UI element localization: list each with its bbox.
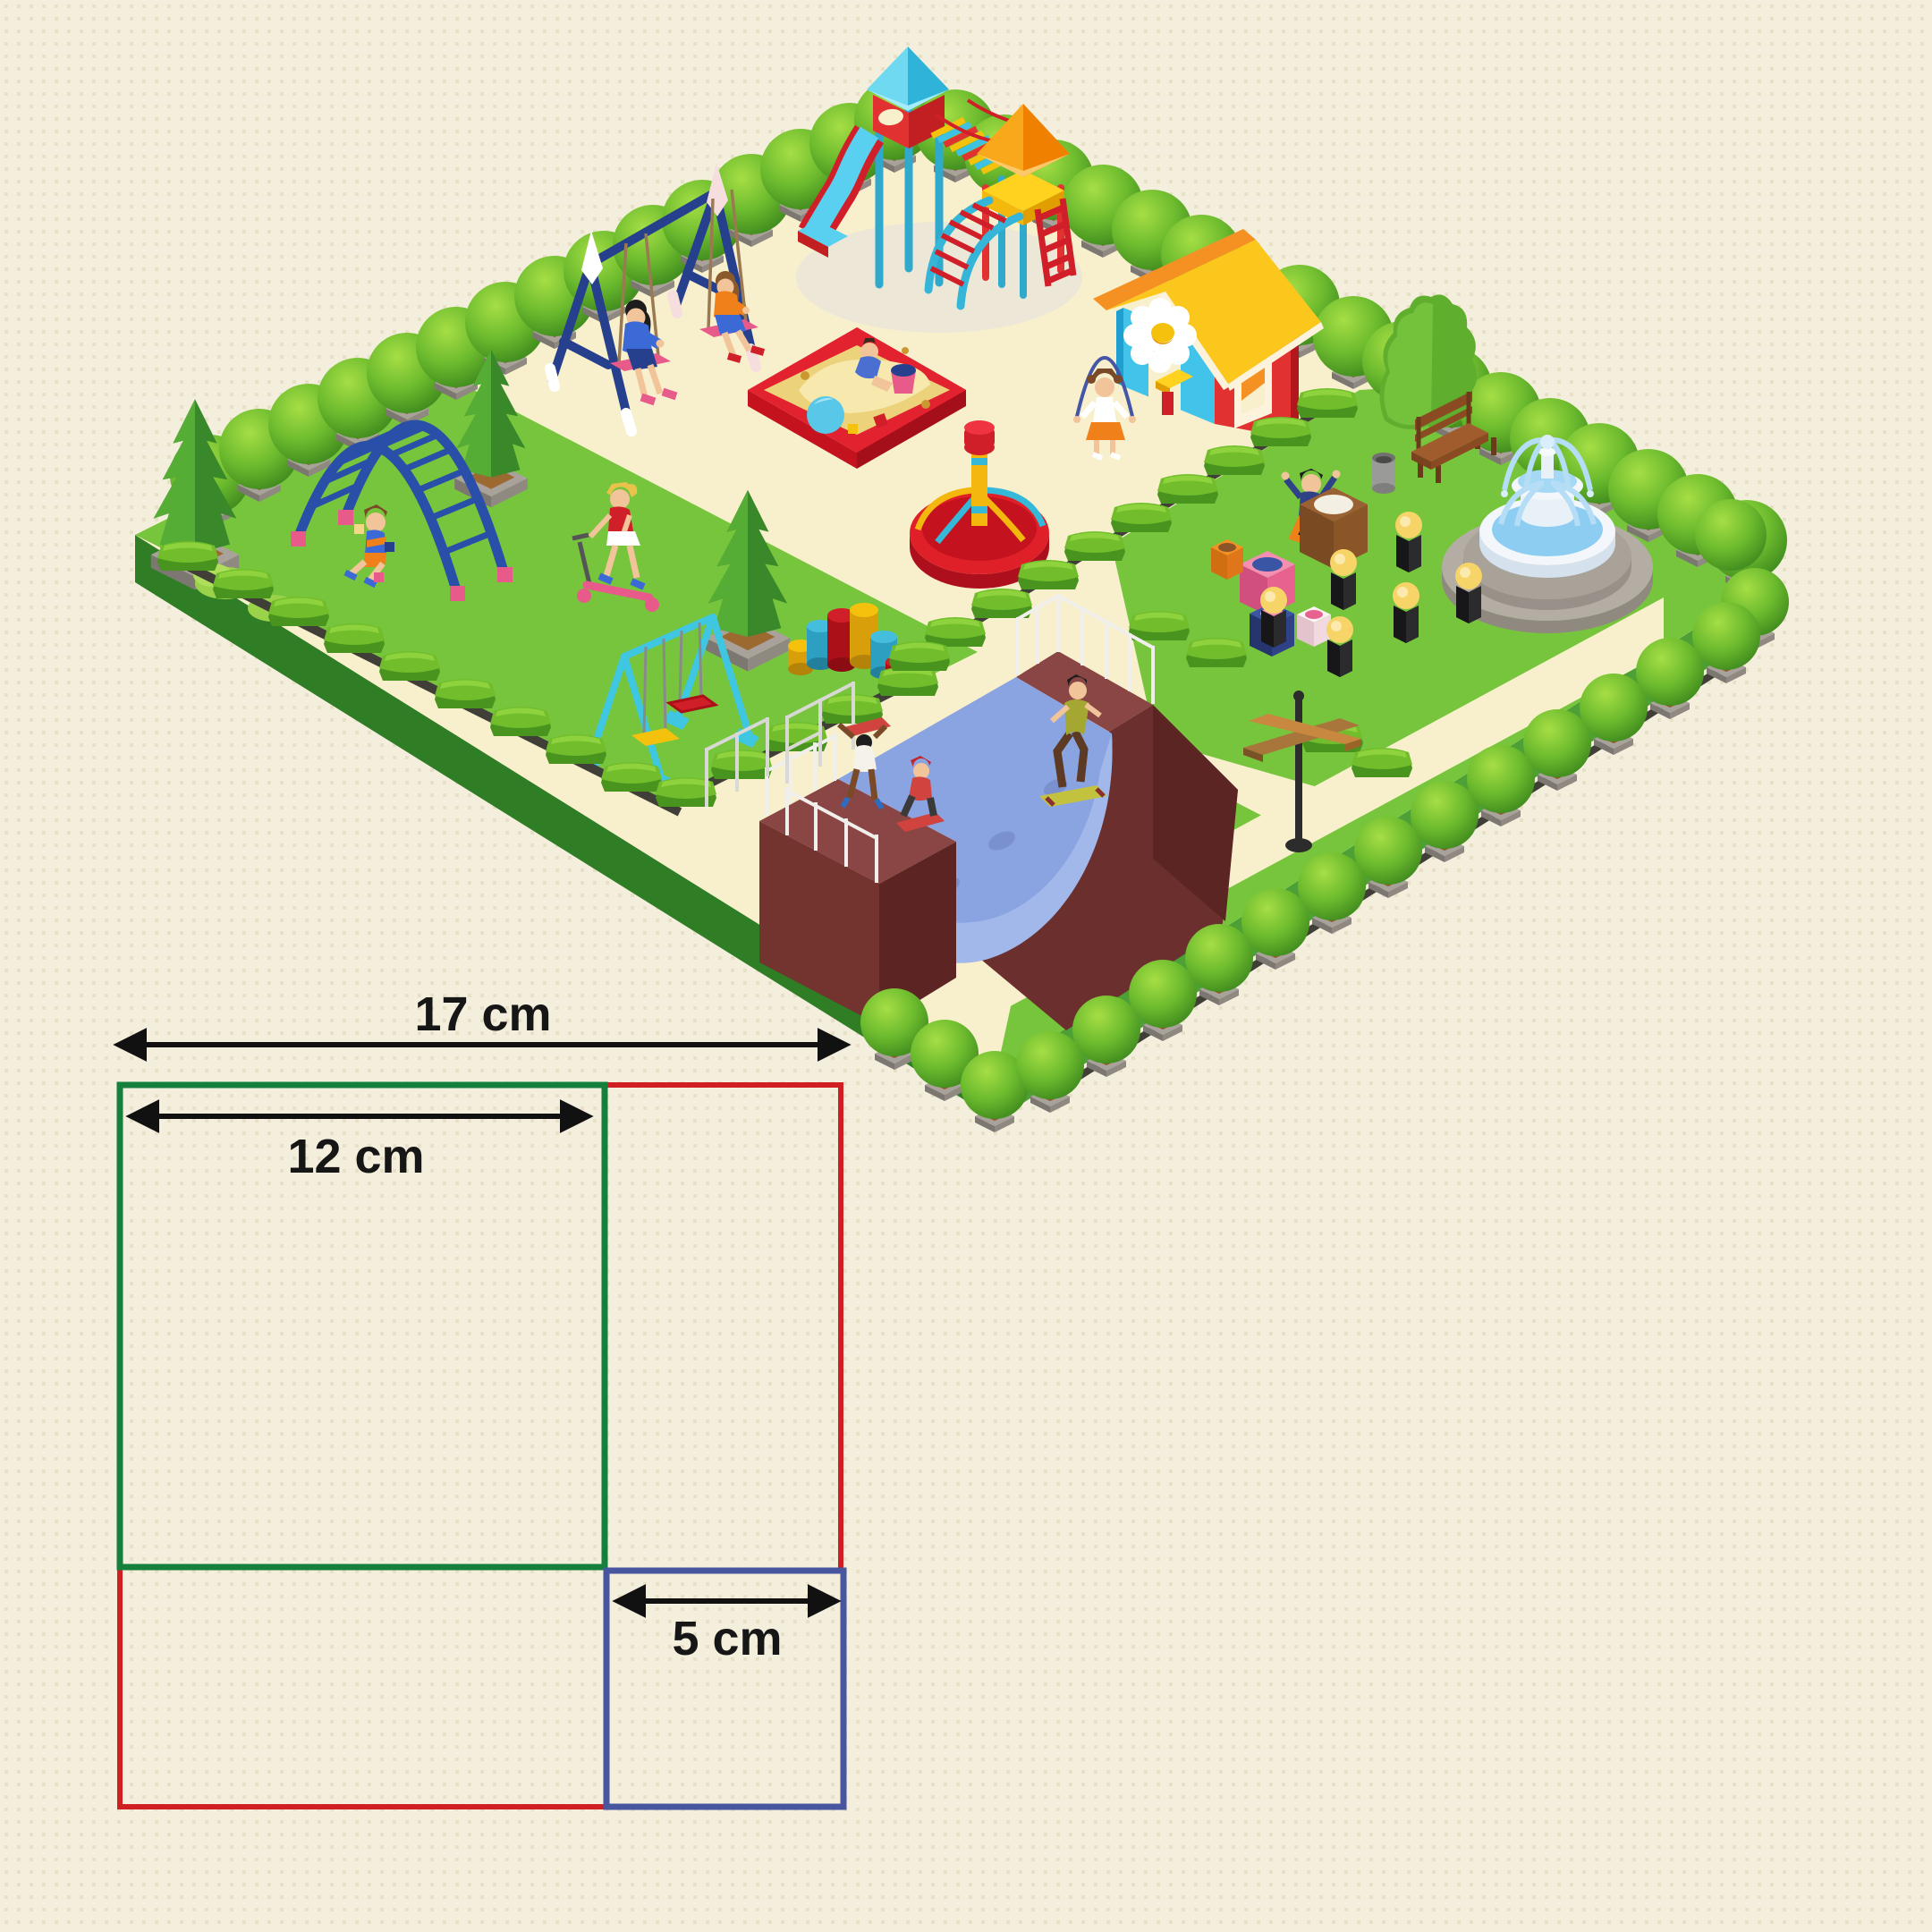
svg-text:5 cm: 5 cm [672,1612,782,1665]
svg-text:17 cm: 17 cm [414,987,551,1041]
svg-text:12 cm: 12 cm [287,1130,424,1183]
